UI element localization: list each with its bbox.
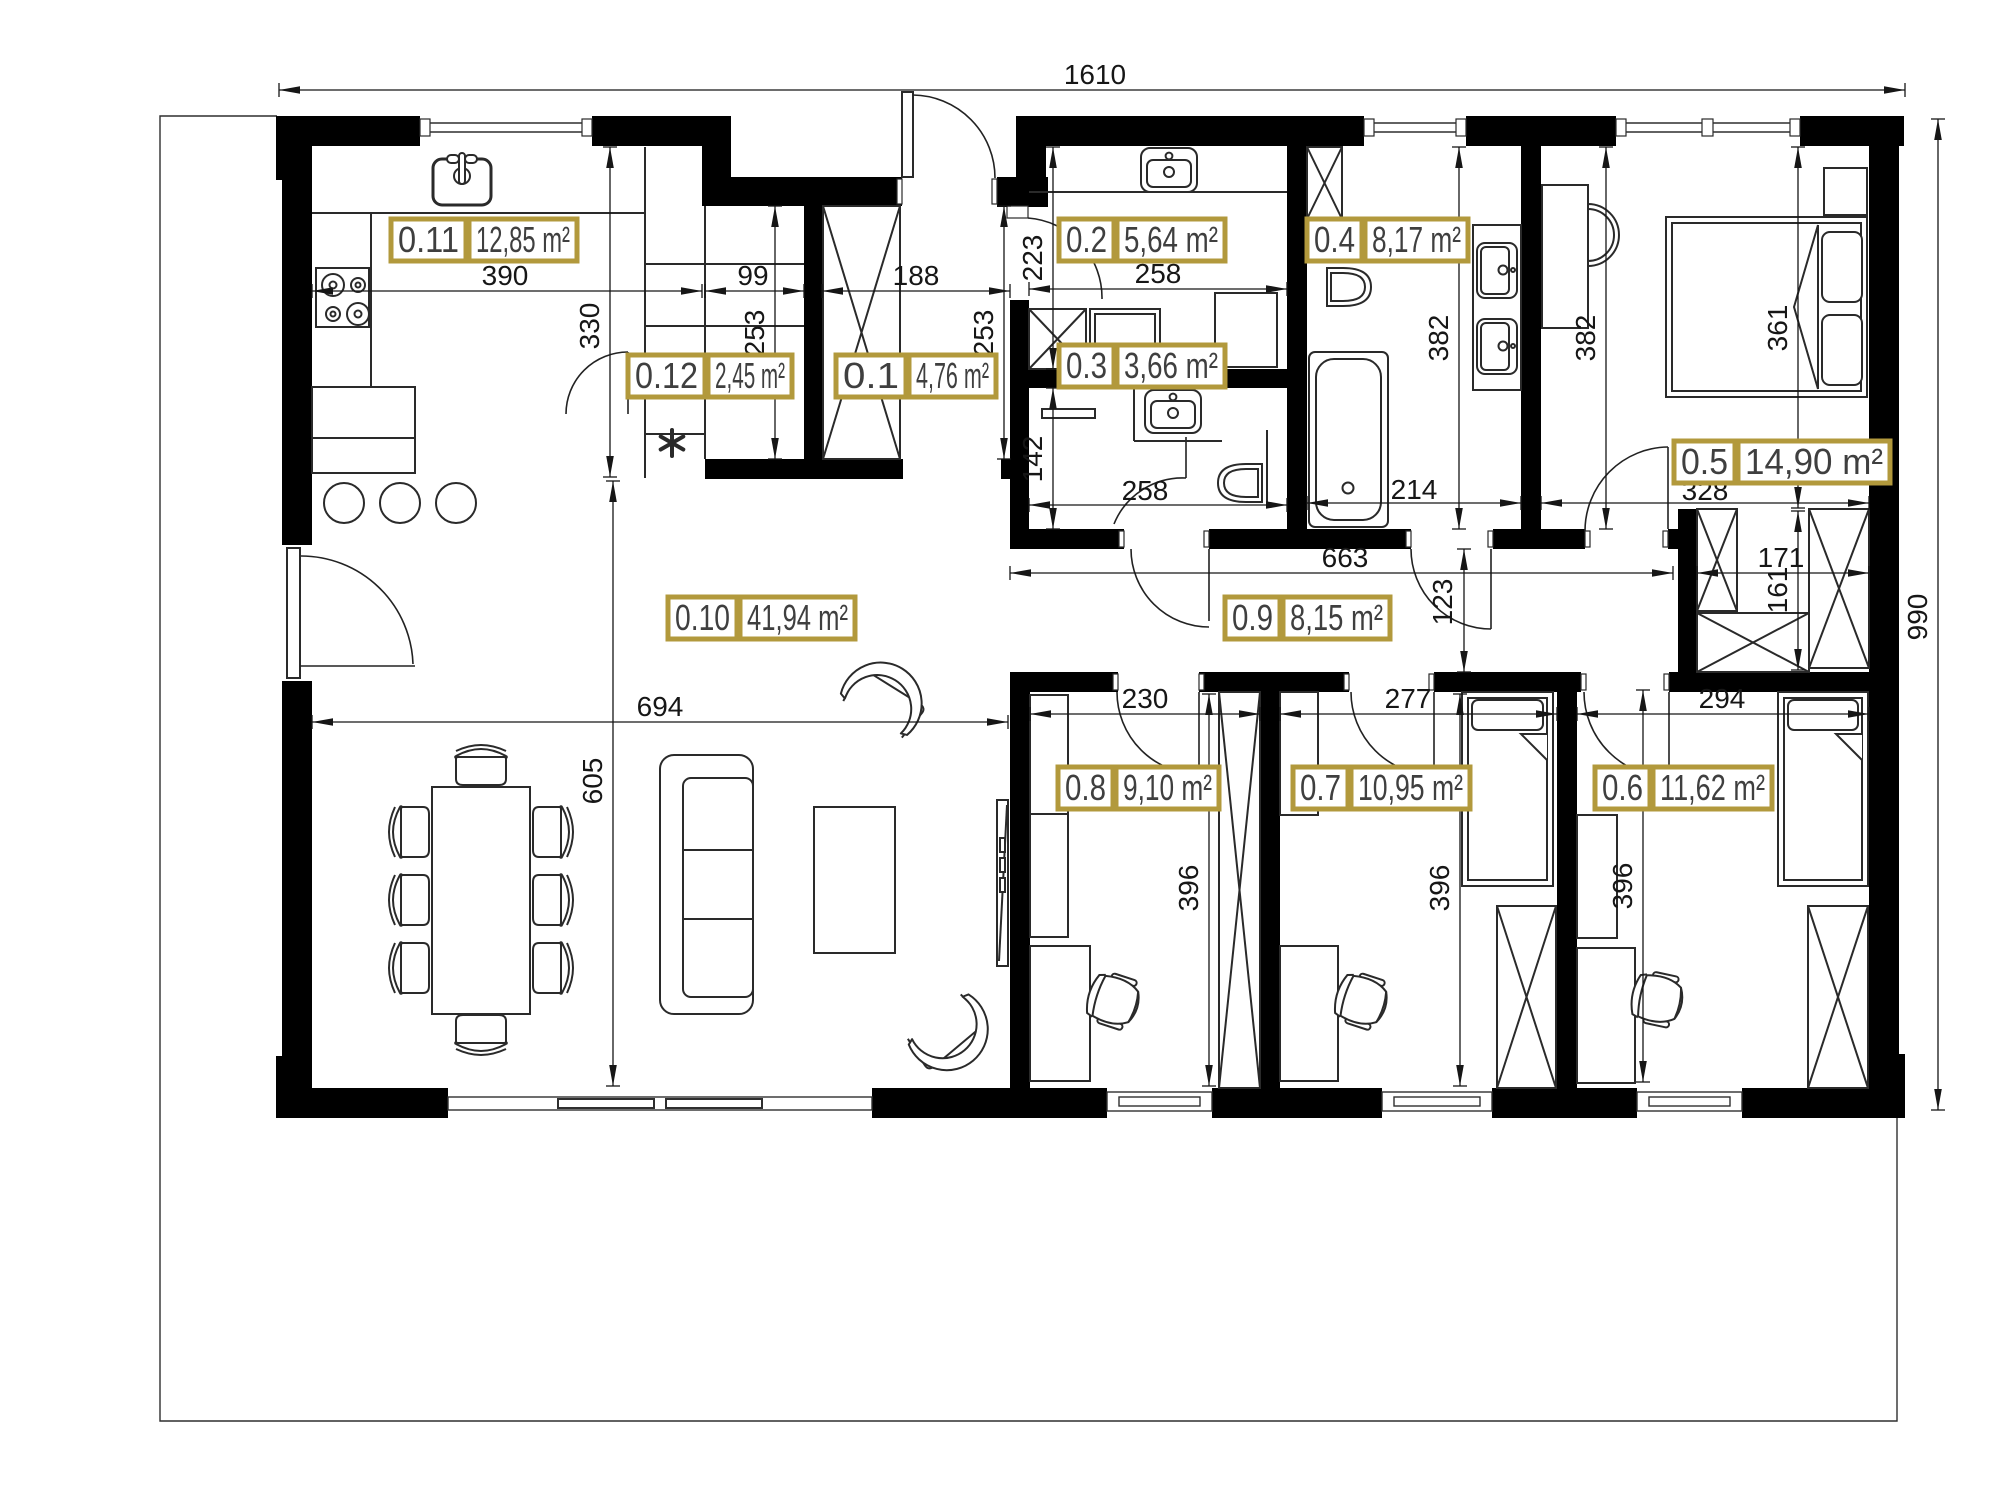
svg-text:0.2: 0.2 xyxy=(1066,219,1107,260)
svg-text:5,64 m²: 5,64 m² xyxy=(1124,219,1218,260)
svg-text:2,45 m²: 2,45 m² xyxy=(715,355,785,396)
svg-text:11,62 m²: 11,62 m² xyxy=(1660,767,1765,808)
svg-text:258: 258 xyxy=(1122,475,1169,506)
svg-text:605: 605 xyxy=(577,758,608,805)
svg-text:396: 396 xyxy=(1424,865,1455,912)
svg-text:390: 390 xyxy=(482,260,529,291)
svg-text:10,95 m²: 10,95 m² xyxy=(1358,767,1463,808)
svg-text:161: 161 xyxy=(1762,567,1793,614)
svg-text:361: 361 xyxy=(1762,305,1793,352)
svg-text:99: 99 xyxy=(737,260,768,291)
svg-text:123: 123 xyxy=(1427,579,1458,626)
svg-text:0.3: 0.3 xyxy=(1066,345,1107,386)
svg-text:0.4: 0.4 xyxy=(1314,219,1355,260)
svg-text:253: 253 xyxy=(739,310,770,357)
svg-text:9,10 m²: 9,10 m² xyxy=(1123,767,1212,808)
svg-text:0.9: 0.9 xyxy=(1232,597,1273,638)
svg-text:277: 277 xyxy=(1385,683,1432,714)
svg-text:188: 188 xyxy=(893,260,940,291)
svg-text:214: 214 xyxy=(1391,474,1438,505)
svg-text:330: 330 xyxy=(574,303,605,350)
svg-text:8,17 m²: 8,17 m² xyxy=(1372,219,1461,260)
svg-text:0.10: 0.10 xyxy=(675,597,730,638)
svg-text:253: 253 xyxy=(968,310,999,357)
svg-text:142: 142 xyxy=(1017,436,1048,483)
svg-text:396: 396 xyxy=(1607,863,1638,910)
svg-text:0.7: 0.7 xyxy=(1300,767,1341,808)
svg-text:0.11: 0.11 xyxy=(398,219,459,260)
svg-text:0.6: 0.6 xyxy=(1602,767,1643,808)
svg-text:382: 382 xyxy=(1570,315,1601,362)
svg-text:8,15 m²: 8,15 m² xyxy=(1290,597,1383,638)
svg-text:14,90 m²: 14,90 m² xyxy=(1745,441,1883,482)
svg-text:230: 230 xyxy=(1122,683,1169,714)
svg-text:4,76 m²: 4,76 m² xyxy=(916,355,989,396)
svg-text:0.5: 0.5 xyxy=(1681,441,1728,482)
svg-text:3,66 m²: 3,66 m² xyxy=(1124,345,1218,386)
svg-text:223: 223 xyxy=(1017,235,1048,282)
svg-text:1610: 1610 xyxy=(1064,59,1126,90)
svg-text:396: 396 xyxy=(1173,865,1204,912)
svg-text:294: 294 xyxy=(1699,683,1746,714)
svg-text:12,85 m²: 12,85 m² xyxy=(476,219,570,260)
svg-text:41,94 m²: 41,94 m² xyxy=(747,597,848,638)
svg-text:0.1: 0.1 xyxy=(843,355,899,396)
svg-text:663: 663 xyxy=(1322,542,1369,573)
svg-text:382: 382 xyxy=(1423,315,1454,362)
svg-text:0.12: 0.12 xyxy=(635,355,698,396)
svg-text:694: 694 xyxy=(637,691,684,722)
svg-text:0.8: 0.8 xyxy=(1065,767,1106,808)
svg-text:990: 990 xyxy=(1902,594,1933,641)
